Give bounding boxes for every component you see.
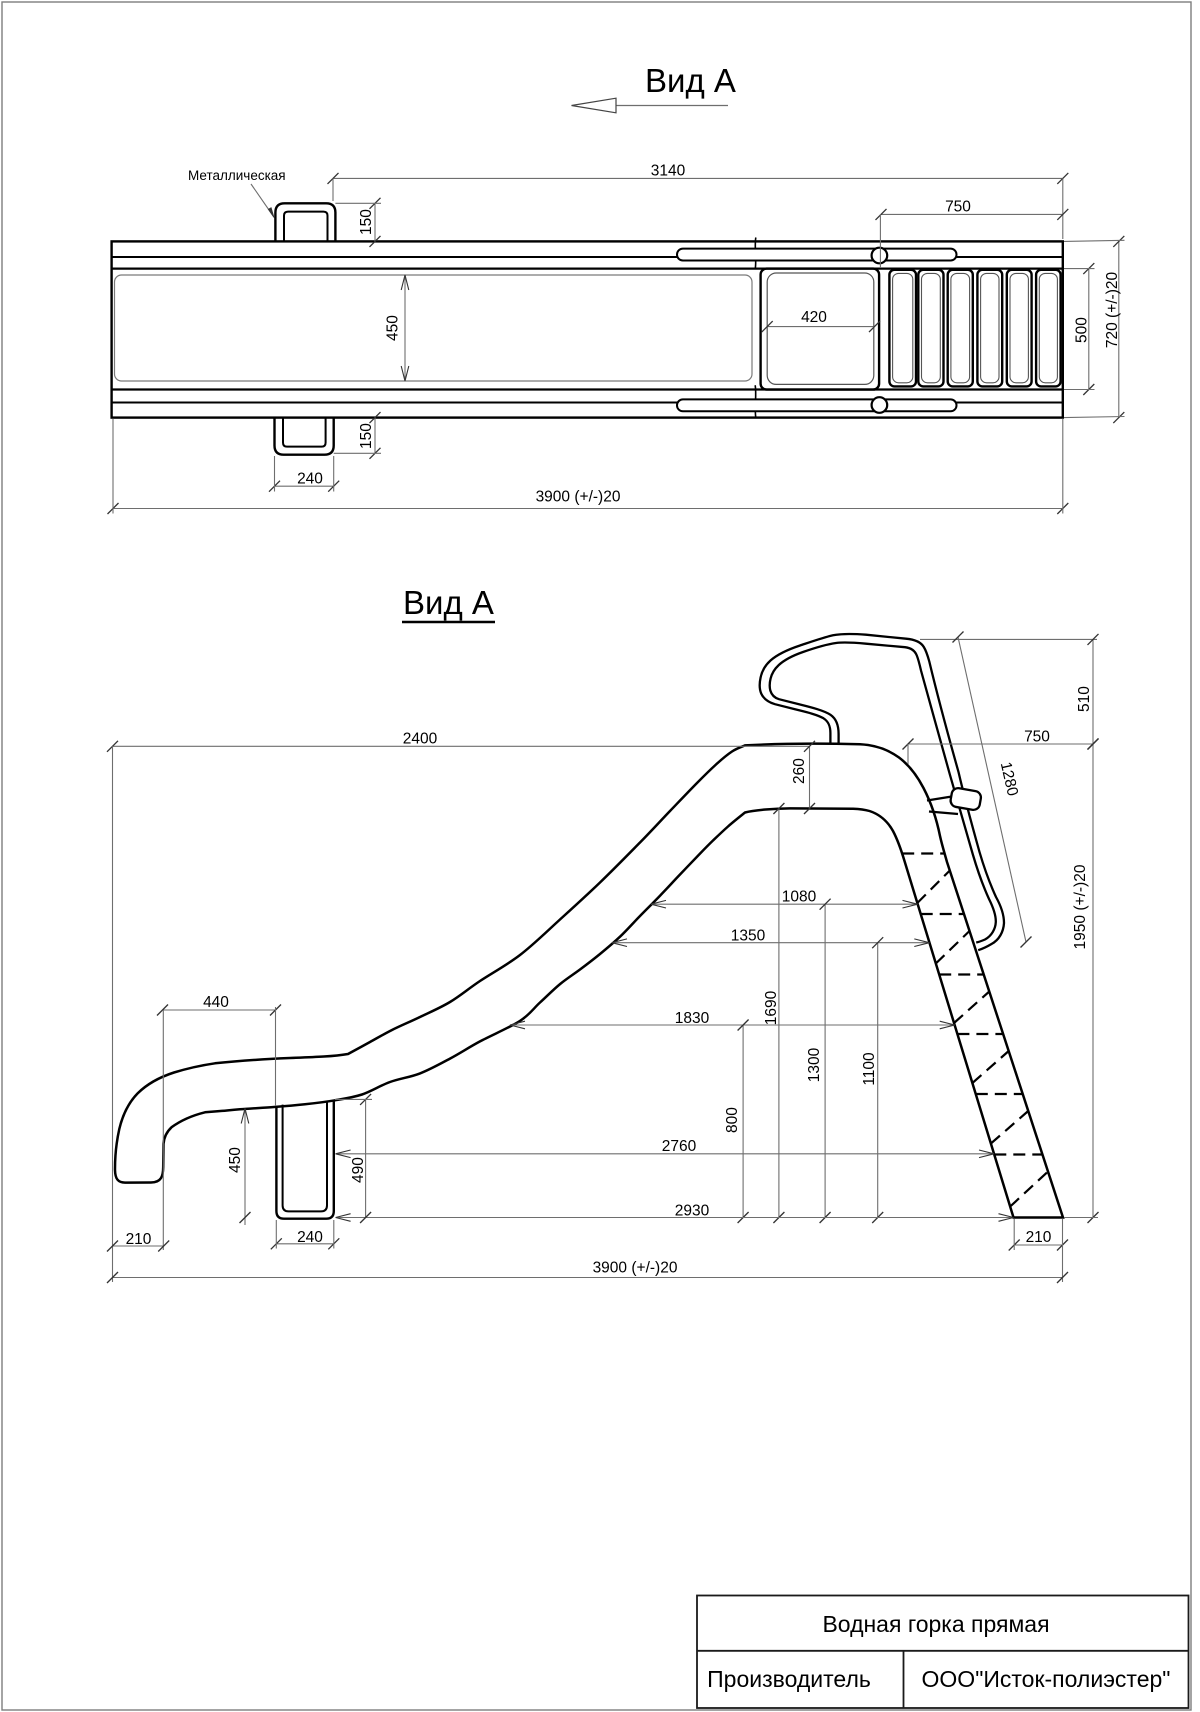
svg-text:450: 450 [227,1147,244,1173]
svg-text:1100: 1100 [861,1052,878,1086]
svg-text:440: 440 [203,994,229,1011]
svg-text:ООО"Исток-полиэстер": ООО"Исток-полиэстер" [922,1666,1171,1692]
svg-text:3900 (+/-)20: 3900 (+/-)20 [536,489,621,506]
svg-text:Вид А: Вид А [403,584,494,621]
svg-text:720 (+/-)20: 720 (+/-)20 [1104,272,1121,349]
svg-text:450: 450 [385,315,402,341]
svg-text:Водная горка прямая: Водная горка прямая [822,1611,1049,1637]
svg-text:3900 (+/-)20: 3900 (+/-)20 [593,1260,678,1277]
svg-text:420: 420 [801,309,827,326]
svg-text:1690: 1690 [763,990,780,1025]
svg-text:1080: 1080 [782,889,817,906]
svg-text:1300: 1300 [806,1047,823,1082]
svg-text:Металлическая: Металлическая [188,168,286,183]
svg-text:1350: 1350 [731,928,766,945]
svg-text:750: 750 [1024,729,1050,746]
svg-text:510: 510 [1076,686,1093,712]
svg-text:240: 240 [297,1229,323,1246]
svg-text:Вид А: Вид А [645,62,736,99]
svg-text:750: 750 [945,199,971,216]
svg-text:500: 500 [1074,317,1091,343]
svg-text:490: 490 [350,1157,367,1183]
svg-text:2760: 2760 [662,1138,697,1155]
svg-text:260: 260 [791,758,808,784]
svg-text:150: 150 [358,423,375,449]
svg-text:2400: 2400 [403,731,438,748]
svg-text:210: 210 [1026,1229,1052,1246]
svg-text:1830: 1830 [675,1010,710,1027]
svg-text:210: 210 [126,1231,152,1248]
svg-text:240: 240 [297,471,323,488]
svg-text:3140: 3140 [651,163,686,180]
svg-text:Производитель: Производитель [707,1666,871,1692]
svg-text:2930: 2930 [675,1203,710,1220]
svg-text:800: 800 [724,1107,741,1133]
svg-text:150: 150 [358,209,375,235]
svg-text:1950 (+/-)20: 1950 (+/-)20 [1072,864,1089,949]
